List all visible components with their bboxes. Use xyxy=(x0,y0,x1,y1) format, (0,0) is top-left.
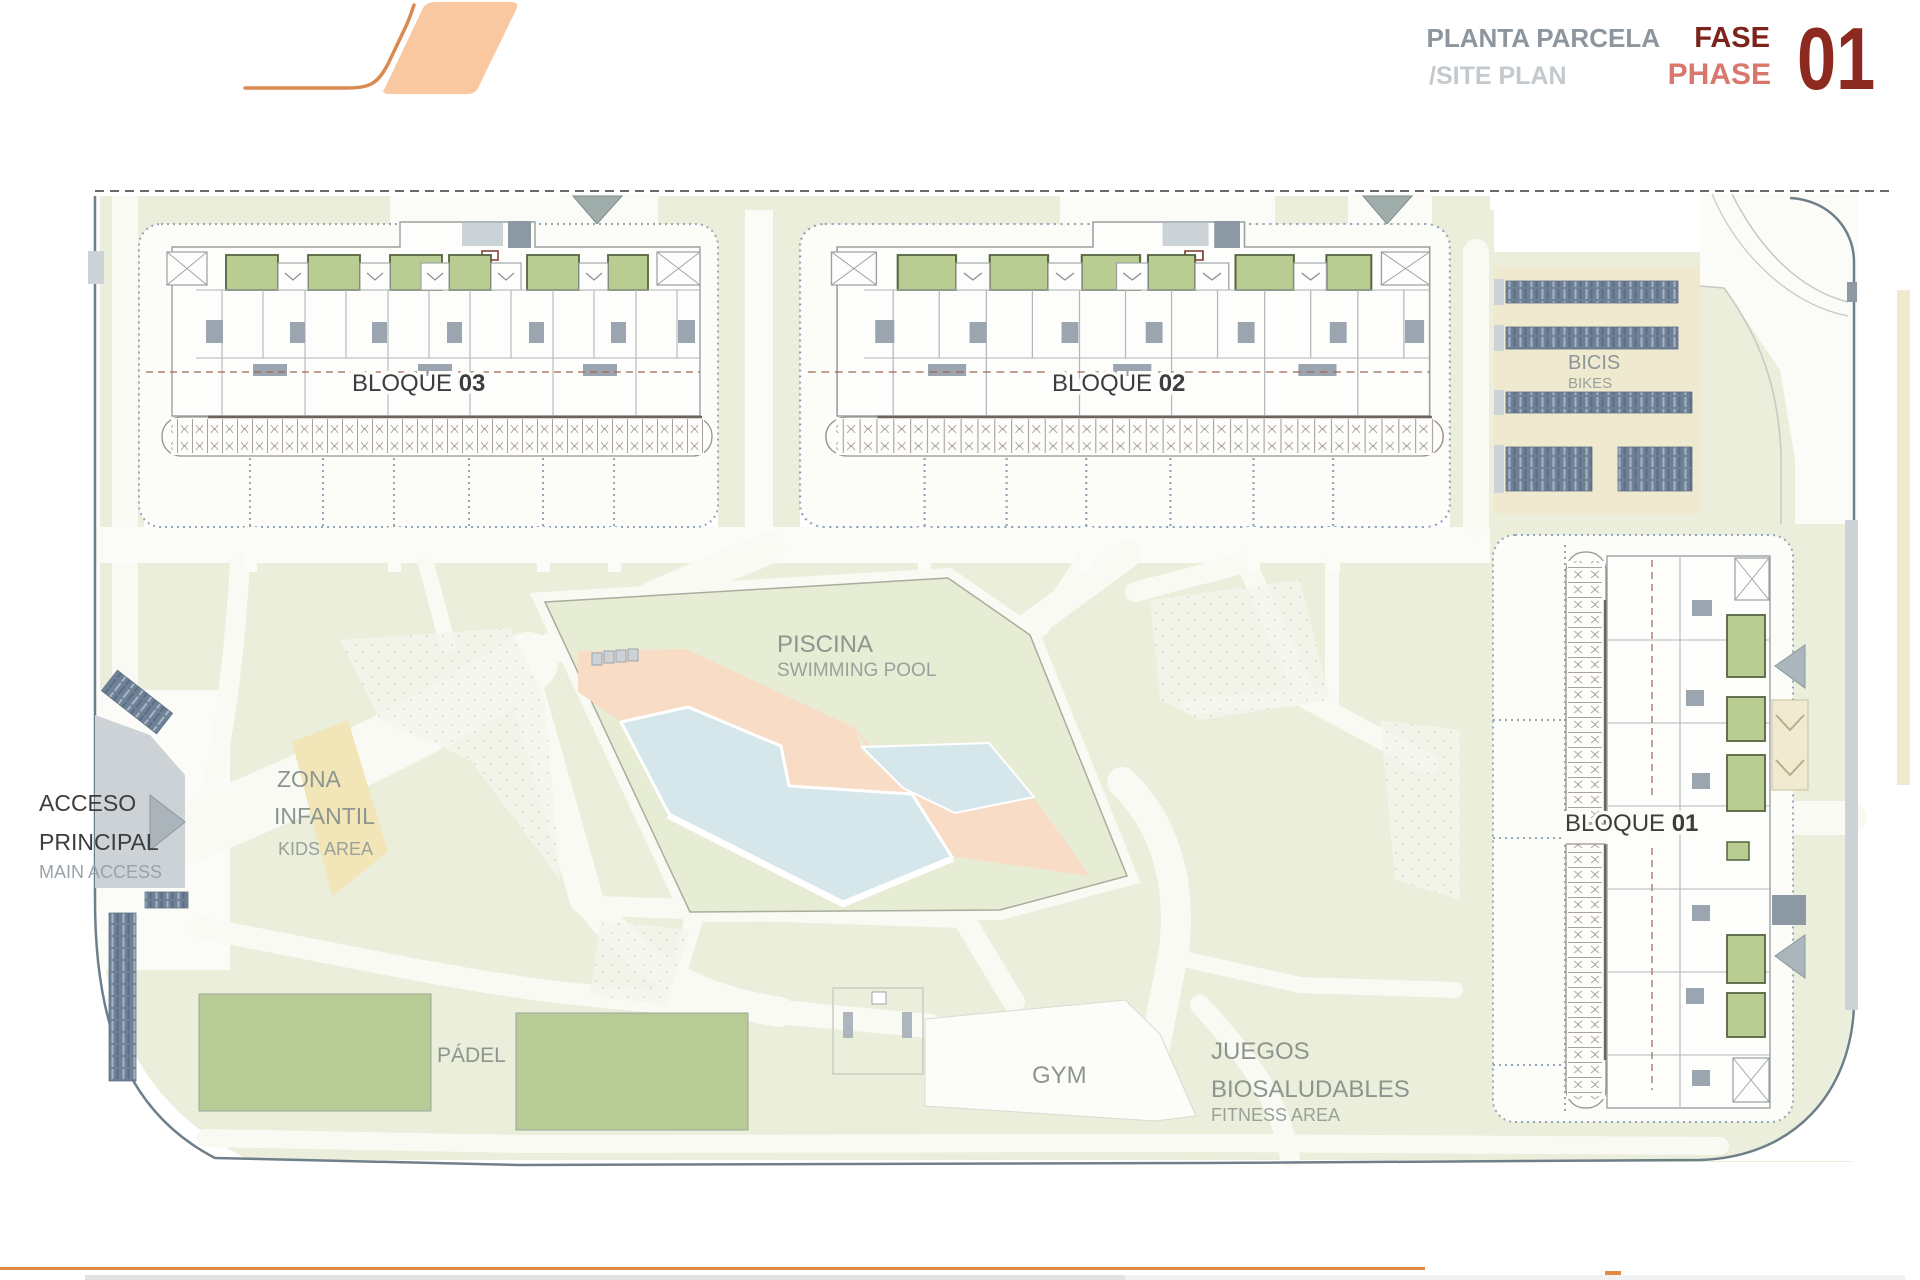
svg-text:JUEGOS: JUEGOS xyxy=(1211,1038,1310,1065)
svg-text:PLANTA PARCELA: PLANTA PARCELA xyxy=(1426,23,1660,53)
svg-text:BIOSALUDABLES: BIOSALUDABLES xyxy=(1211,1076,1410,1103)
svg-text:BLOQUE 02: BLOQUE 02 xyxy=(1052,370,1185,397)
svg-text:SWIMMING POOL: SWIMMING POOL xyxy=(777,660,936,681)
svg-text:FITNESS AREA: FITNESS AREA xyxy=(1211,1105,1340,1125)
svg-text:PÁDEL: PÁDEL xyxy=(437,1044,506,1067)
svg-text:01: 01 xyxy=(1797,9,1875,107)
svg-text:BLOQUE 03: BLOQUE 03 xyxy=(352,370,485,397)
svg-text:FASE: FASE xyxy=(1694,22,1770,54)
svg-text:PRINCIPAL: PRINCIPAL xyxy=(39,829,159,855)
svg-text:KIDS AREA: KIDS AREA xyxy=(278,839,373,859)
svg-text:PISCINA: PISCINA xyxy=(777,631,873,658)
svg-text:MAIN ACCESS: MAIN ACCESS xyxy=(39,862,162,882)
svg-text:GYM: GYM xyxy=(1032,1062,1087,1089)
svg-text:ACCESO: ACCESO xyxy=(39,790,136,816)
svg-text:BLOQUE 01: BLOQUE 01 xyxy=(1565,810,1698,837)
svg-text:ZONA: ZONA xyxy=(277,766,342,792)
svg-text:INFANTIL: INFANTIL xyxy=(274,803,375,829)
svg-text:BIKES: BIKES xyxy=(1568,375,1612,392)
svg-text:PHASE: PHASE xyxy=(1668,58,1771,91)
svg-text:BICIS: BICIS xyxy=(1568,352,1620,374)
svg-text:/SITE PLAN: /SITE PLAN xyxy=(1429,62,1567,90)
